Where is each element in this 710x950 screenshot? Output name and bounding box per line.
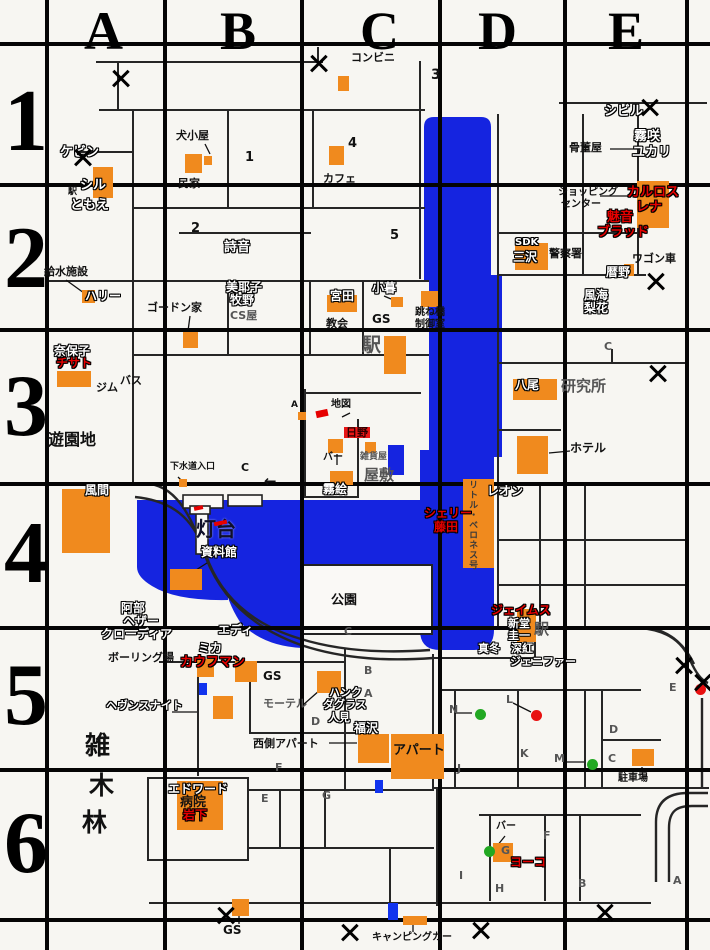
map-label: 三沢 — [513, 251, 537, 263]
blue-road-marker — [388, 903, 398, 920]
map-label: クローディア — [101, 628, 172, 640]
map-label: ヘザー — [123, 615, 159, 627]
building-marker — [329, 146, 344, 165]
map-label: GS — [372, 313, 391, 325]
map-label: ブラッド — [597, 226, 649, 239]
map-label: 風間 — [85, 484, 109, 496]
map-label: G — [322, 790, 331, 801]
map-label: D — [311, 716, 320, 727]
map-label: ユカリ — [632, 146, 671, 159]
building-marker — [204, 156, 212, 165]
map-label: 木 — [89, 773, 114, 799]
map-label: コンビニ — [351, 52, 395, 63]
map-label: C — [241, 462, 249, 473]
grid-row-number: 4 — [4, 510, 48, 598]
map-label: 資料館 — [201, 546, 237, 558]
green-dot-icon — [587, 759, 598, 770]
map-label: 遊園地 — [48, 432, 96, 448]
map-label: 駅 — [68, 188, 77, 197]
blue-road-marker — [375, 780, 383, 793]
map-label: J — [457, 763, 461, 774]
map-label: 霧絵 — [323, 483, 347, 495]
map-label: 阿部 — [121, 602, 145, 614]
grid-column-letter: A — [84, 0, 123, 62]
map-label: エドワード — [168, 783, 228, 795]
building-marker — [358, 734, 389, 763]
building-marker — [170, 569, 202, 590]
map-label: ミカ — [198, 642, 222, 654]
map-label: 八尾 — [515, 379, 539, 391]
grid-row-number: 1 — [4, 78, 48, 166]
map-label: 福沢 — [354, 722, 378, 734]
map-label: ワゴン車 — [632, 253, 676, 264]
map-label: E — [669, 682, 677, 693]
map-label: モーテル — [263, 698, 307, 709]
map-label: 民家 — [178, 178, 200, 189]
map-label: ジム — [96, 382, 118, 393]
map-label: 雑 — [85, 733, 110, 759]
map-label: ヨーコ — [510, 856, 546, 868]
map-label: 日野 — [344, 427, 370, 438]
building-marker — [179, 479, 187, 487]
map-label: ともえ — [70, 199, 109, 212]
map-label: 骨董屋 — [569, 142, 602, 153]
map-label: ← — [264, 474, 277, 489]
map-label: F — [275, 762, 283, 773]
map-label: C — [344, 626, 352, 637]
map-label: センター — [561, 200, 601, 210]
map-label: 西側アパート — [253, 738, 319, 749]
map-label: 詩音 — [224, 241, 250, 254]
map-label: 新堂 — [508, 618, 530, 629]
building-marker — [403, 916, 427, 925]
map-label: 藤田 — [434, 521, 458, 533]
building-marker — [185, 154, 202, 173]
map-label: 圭一 — [508, 630, 530, 641]
red-mark — [315, 409, 328, 418]
map-label: ボーリング場 — [108, 652, 174, 663]
map-label: レオン — [487, 485, 523, 497]
map-label: 深紅 — [511, 643, 533, 654]
x-mark-icon — [339, 921, 361, 943]
map-label: ジェニファー — [510, 656, 576, 667]
building-marker — [421, 291, 438, 307]
grid-row-number: 3 — [4, 363, 48, 451]
map-label: C — [604, 341, 612, 352]
map-label: バー — [496, 822, 516, 832]
grid-row-number: 2 — [4, 215, 48, 303]
map-label: 5 — [390, 229, 399, 242]
map-label: CS屋 — [230, 310, 257, 321]
map-label: 制御室 — [415, 320, 445, 330]
x-mark-icon — [692, 671, 710, 693]
map-label: 警察署 — [549, 248, 582, 259]
x-mark-icon — [308, 52, 330, 74]
grid-row-number: 6 — [4, 800, 48, 888]
building-marker — [183, 332, 198, 348]
map-label: 4 — [348, 137, 357, 150]
map-label: シル — [80, 179, 106, 192]
green-dot-icon — [475, 709, 486, 720]
map-label: カウフマン — [180, 656, 245, 669]
map-label: C — [608, 753, 616, 764]
map-label: キャンピングカー — [372, 933, 452, 943]
map-label: 牧野 — [230, 294, 254, 306]
map-label: 研究所 — [561, 379, 606, 394]
map-label: 跳ね橋 — [415, 308, 445, 318]
map-label: 1 — [245, 151, 254, 164]
map-label: 地図 — [331, 400, 351, 410]
map-label: 美耶子 — [226, 281, 262, 293]
map-label: 駅 — [534, 622, 549, 637]
map-label: 暦野 — [606, 266, 630, 278]
map-label: ホテル — [570, 442, 606, 454]
map-annotations: コンビニ3シビル犬小屋14民家カフェケビン駅シルともえ骨董屋霧咲ユカリショッピン… — [0, 0, 710, 950]
map-label: シェリー — [424, 507, 472, 519]
map-label: A — [291, 401, 298, 410]
map-label: B — [578, 878, 586, 889]
building-marker — [338, 76, 349, 91]
x-mark-icon — [645, 270, 667, 292]
map-label: ハリー — [85, 290, 121, 302]
map-label: GS — [263, 670, 282, 682]
map-label: SDK — [515, 238, 538, 248]
map-label: F — [543, 830, 551, 841]
town-map: コンビニ3シビル犬小屋14民家カフェケビン駅シルともえ骨董屋霧咲ユカリショッピン… — [0, 0, 710, 950]
building-marker — [519, 457, 546, 474]
x-mark-icon — [470, 919, 492, 941]
map-label: 犬小屋 — [176, 130, 209, 141]
map-label: 2 — [191, 222, 200, 235]
grid-column-letter: D — [478, 0, 517, 62]
map-label: 人見 — [328, 712, 350, 723]
map-label: アパート — [393, 744, 445, 757]
blue-road-marker — [199, 683, 207, 695]
map-label: ハンク — [329, 687, 362, 698]
grid-column-letter: B — [220, 0, 256, 62]
map-label: E — [261, 793, 269, 804]
red-mark — [194, 505, 204, 511]
map-label: L — [506, 694, 513, 705]
map-label: 3 — [431, 68, 441, 82]
map-label: カルロス — [627, 186, 679, 199]
map-label: ゴードン家 — [147, 302, 202, 313]
map-label: M — [554, 753, 565, 764]
map-label: 教会 — [326, 318, 348, 329]
building-marker — [62, 489, 110, 553]
map-label: D — [609, 724, 618, 735]
x-mark-icon — [72, 146, 94, 168]
map-label: 雑貨屋 — [360, 453, 387, 462]
map-label: 魅音 — [607, 211, 633, 224]
map-label: 岩下 — [183, 809, 207, 821]
map-label: 真冬 — [478, 643, 500, 654]
map-label: 小暮 — [372, 282, 396, 294]
map-label: K — [520, 748, 529, 759]
map-label: バス — [120, 375, 142, 386]
map-label: リトル・ベロネス号 — [467, 480, 476, 570]
map-label: ヘヴンスナイト — [106, 700, 183, 711]
building-marker — [391, 297, 403, 307]
map-label: レナ — [636, 201, 662, 214]
x-mark-icon — [647, 362, 669, 384]
map-label: 給水施設 — [44, 266, 88, 277]
building-marker — [213, 696, 233, 719]
x-mark-icon — [639, 96, 661, 118]
x-mark-icon — [594, 901, 616, 923]
map-label: 梨花 — [584, 302, 608, 314]
map-label: 宮田 — [330, 290, 354, 302]
building-marker — [57, 371, 91, 387]
x-mark-icon — [110, 67, 132, 89]
map-label: A — [673, 875, 682, 886]
green-dot-icon — [484, 846, 495, 857]
building-marker — [298, 412, 306, 420]
map-label: N — [449, 704, 458, 715]
map-label: チサト — [56, 357, 92, 369]
map-label: B — [364, 665, 372, 676]
grid-row-number: 5 — [4, 652, 48, 740]
map-label: 屋敷 — [364, 468, 394, 483]
map-label: 林 — [82, 810, 107, 836]
x-mark-icon — [215, 904, 237, 926]
map-label: 駅 — [362, 336, 381, 355]
map-label: I — [459, 870, 463, 881]
map-label: ダグラス — [323, 699, 367, 710]
map-label: カフェ — [323, 173, 356, 184]
building-marker — [632, 749, 654, 766]
map-label: ジェイムス — [491, 604, 551, 616]
map-label: G — [501, 845, 510, 856]
map-label: 下水道入口 — [170, 463, 215, 472]
map-label: 霧咲 — [634, 130, 660, 143]
map-label: 公園 — [331, 594, 357, 607]
map-label: 風海 — [584, 289, 608, 301]
map-label: 駐車場 — [618, 774, 648, 784]
map-label: シビル — [604, 105, 643, 118]
map-label: バー — [323, 453, 343, 463]
building-marker — [328, 439, 343, 453]
building-marker — [384, 336, 406, 374]
grid-column-letter: E — [608, 0, 644, 62]
map-label: A — [364, 688, 373, 699]
map-label: H — [495, 883, 504, 894]
map-label: エディ — [218, 624, 253, 636]
map-label: ショッピング — [558, 188, 618, 198]
red-dot-icon — [531, 710, 542, 721]
